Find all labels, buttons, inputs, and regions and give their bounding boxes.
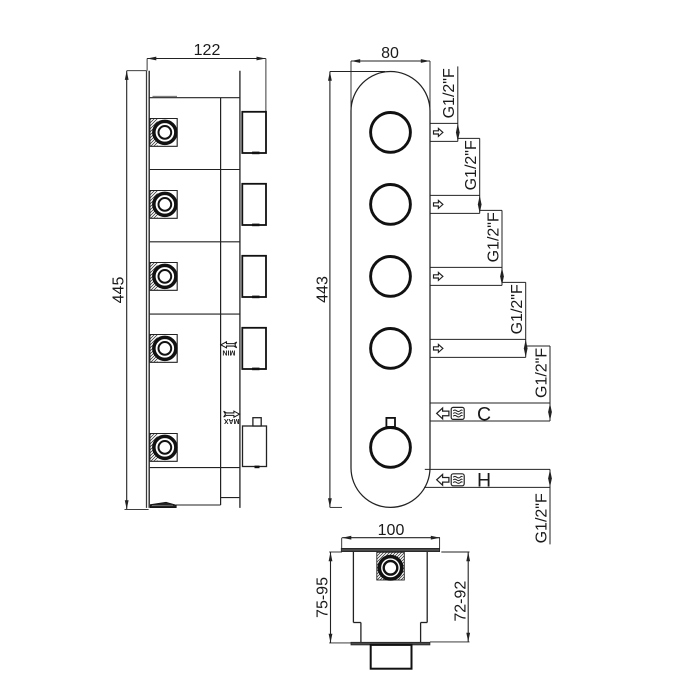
svg-text:G1/2"F: G1/2"F (441, 68, 458, 118)
svg-text:G1/2"F: G1/2"F (509, 284, 526, 334)
svg-text:G1/2"F: G1/2"F (485, 212, 502, 262)
svg-text:72-92: 72-92 (453, 581, 470, 622)
svg-text:G1/2"F: G1/2"F (533, 493, 550, 543)
svg-text:G1/2"F: G1/2"F (463, 140, 480, 190)
svg-text:445: 445 (110, 277, 127, 304)
svg-text:C: C (477, 404, 491, 426)
svg-text:100: 100 (378, 522, 405, 539)
svg-text:MAX: MAX (224, 417, 240, 424)
svg-text:75-95: 75-95 (315, 577, 332, 618)
svg-text:122: 122 (194, 42, 221, 59)
svg-text:80: 80 (381, 45, 399, 62)
svg-text:H: H (477, 470, 491, 492)
svg-text:443: 443 (314, 276, 331, 303)
svg-text:G1/2"F: G1/2"F (533, 348, 550, 398)
svg-text:MIN: MIN (222, 348, 235, 355)
